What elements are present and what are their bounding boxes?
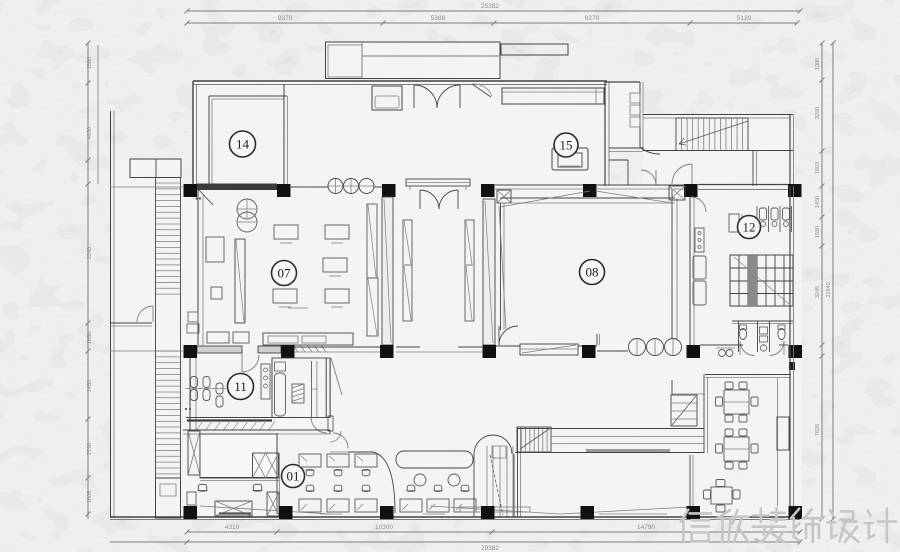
- svg-text:29382: 29382: [481, 545, 499, 552]
- svg-text:1605: 1605: [87, 491, 93, 503]
- svg-text:01: 01: [287, 469, 300, 484]
- svg-text:14: 14: [236, 137, 250, 152]
- svg-text:22840: 22840: [826, 282, 832, 297]
- svg-text:10300: 10300: [375, 524, 393, 531]
- svg-text:2790: 2790: [87, 443, 93, 455]
- svg-text:1803: 1803: [815, 162, 821, 174]
- svg-text:15: 15: [560, 138, 573, 153]
- svg-text:9370: 9370: [278, 15, 293, 22]
- svg-text:1560: 1560: [87, 57, 93, 69]
- svg-text:3250: 3250: [815, 107, 821, 119]
- svg-text:08: 08: [586, 265, 599, 280]
- svg-text:3245: 3245: [815, 286, 821, 298]
- svg-text:1450: 1450: [815, 196, 821, 208]
- svg-text:14790: 14790: [637, 524, 655, 531]
- svg-text:5120: 5120: [737, 15, 752, 22]
- svg-text:4930: 4930: [87, 127, 93, 139]
- svg-text:4310: 4310: [225, 524, 240, 531]
- svg-text:12: 12: [743, 220, 756, 235]
- svg-text:9270: 9270: [585, 15, 600, 22]
- svg-text:25382: 25382: [481, 3, 499, 10]
- svg-text:11: 11: [234, 379, 247, 394]
- svg-text:2240: 2240: [87, 247, 93, 259]
- svg-text:5388: 5388: [431, 15, 446, 22]
- svg-text:07: 07: [278, 266, 292, 281]
- svg-text:7626: 7626: [815, 424, 821, 436]
- svg-text:1450: 1450: [87, 380, 93, 392]
- svg-text:1650: 1650: [87, 332, 93, 344]
- svg-text:1550: 1550: [815, 226, 821, 238]
- svg-text:1380: 1380: [815, 58, 821, 70]
